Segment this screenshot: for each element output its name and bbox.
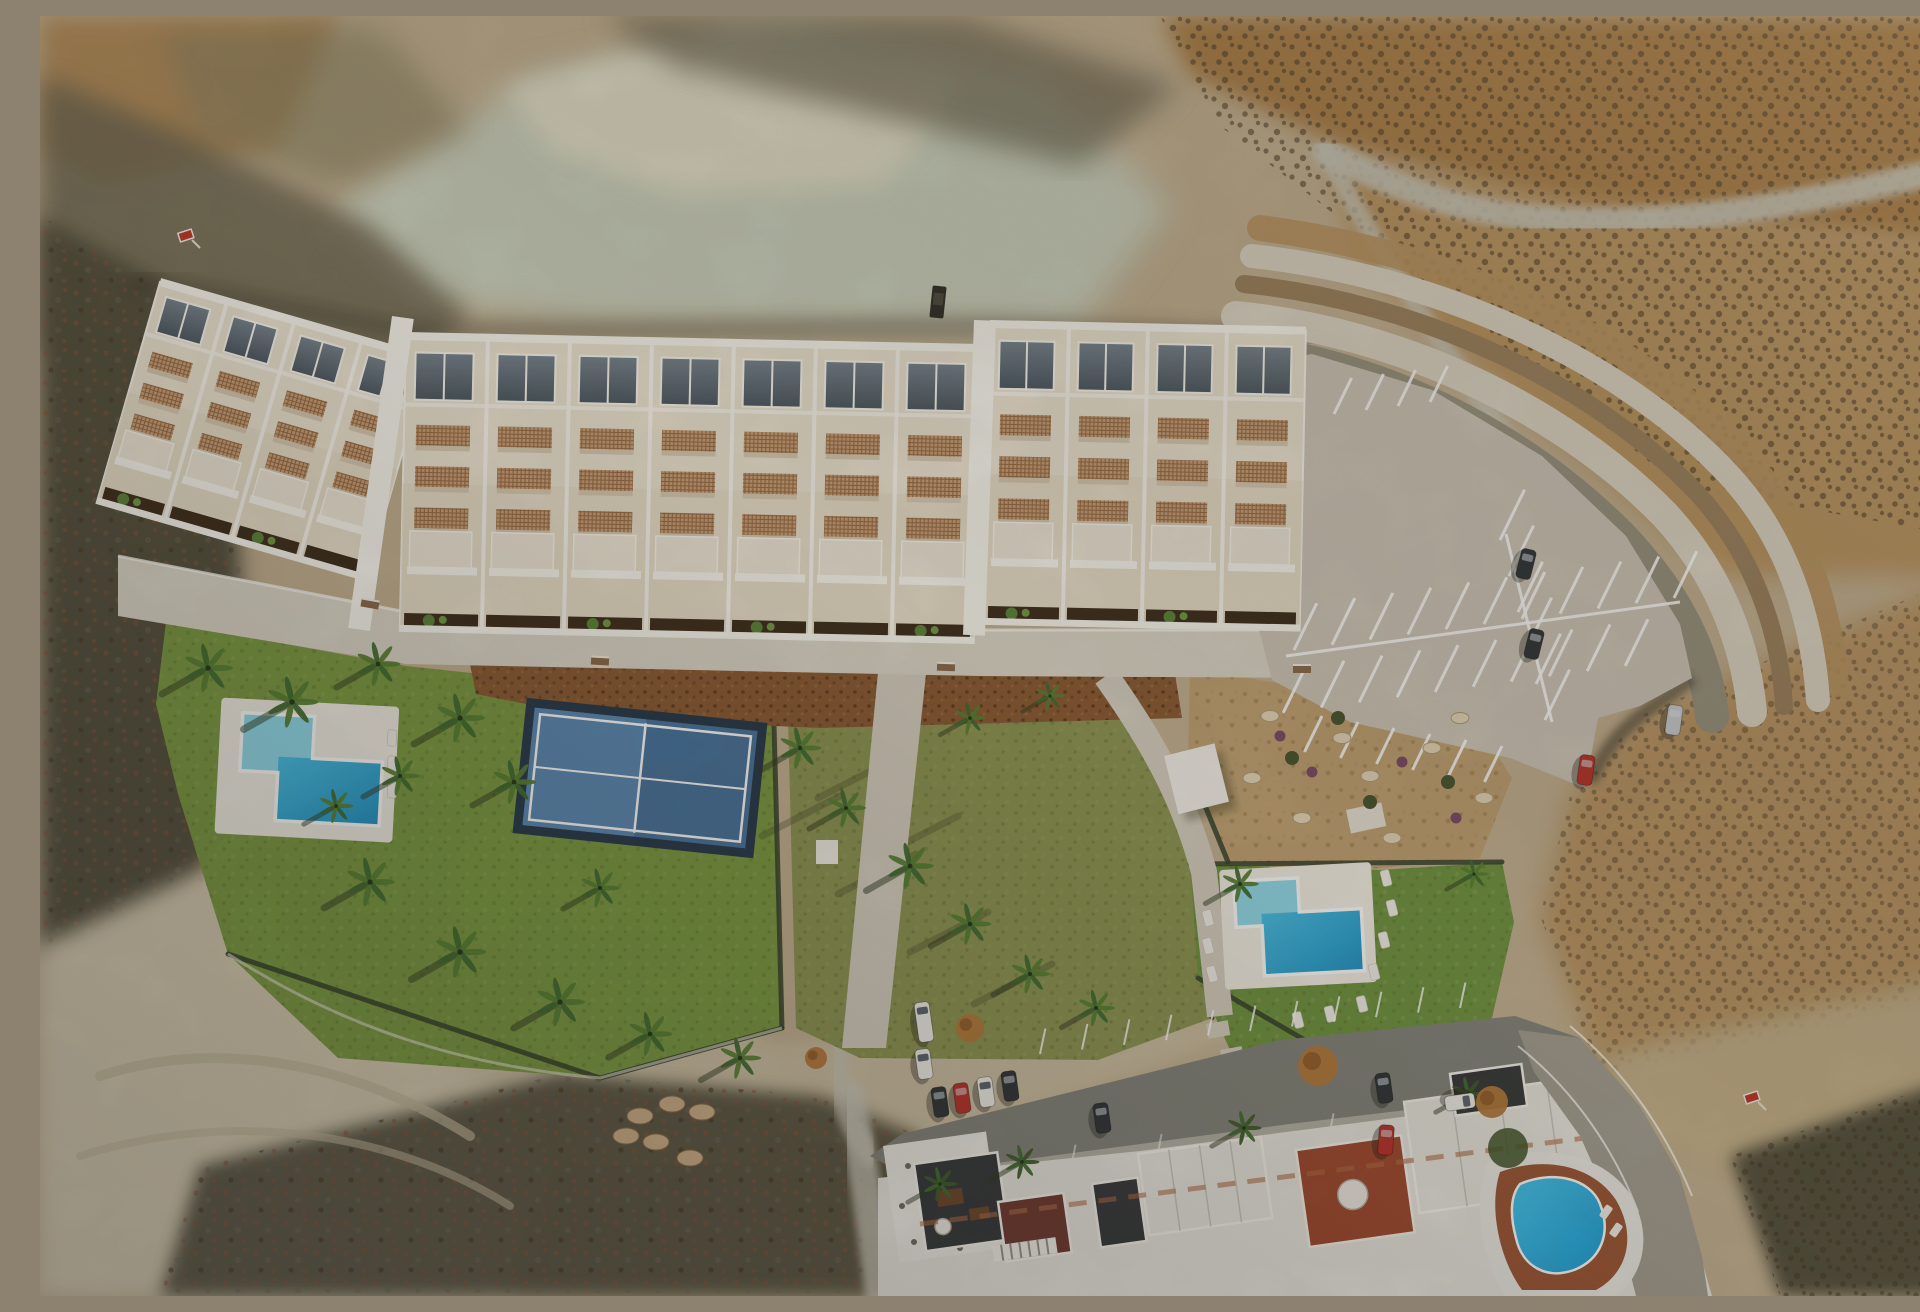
aerial-development-photo (40, 16, 1920, 1296)
light-vignette (40, 16, 1920, 1296)
scene-svg (40, 16, 1920, 1296)
photo-overlays (40, 16, 1920, 1296)
